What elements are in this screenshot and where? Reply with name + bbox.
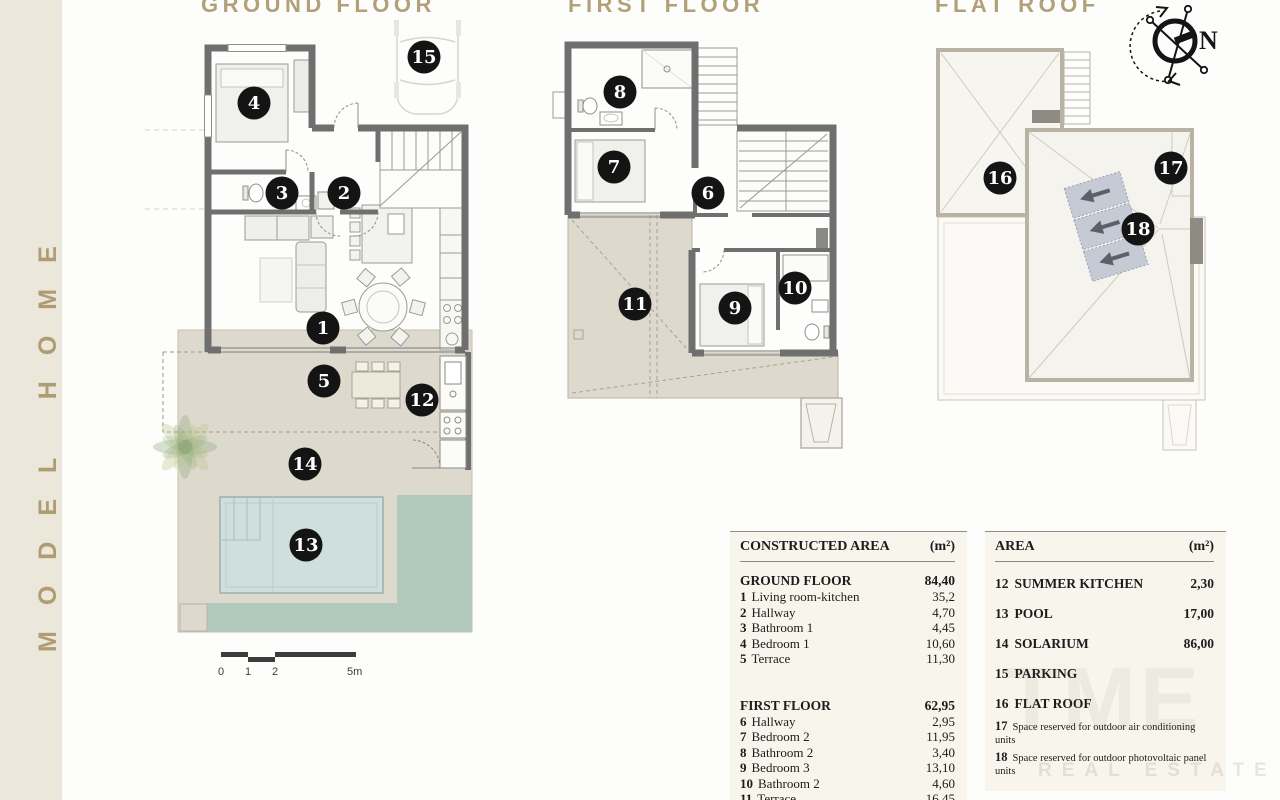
wardrobe [245,216,333,240]
table-row: 4Bedroom 110,60 [740,636,955,652]
corner-pad [180,604,207,631]
title-ground-floor: GROUND FLOOR [201,0,436,18]
table-row: 13POOL17,00 [995,606,1214,622]
svg-text:2: 2 [338,183,351,204]
table-row: 12SUMMER KITCHEN2,30 [995,576,1214,592]
table-row: 9Bedroom 313,10 [740,760,955,776]
scale-tick-2: 2 [272,666,278,678]
room-marker-10: 10 [779,272,812,305]
table-unit: (m²) [930,539,955,555]
room-marker-8: 8 [604,76,637,109]
room-marker-11: 11 [619,288,652,321]
roof-junction-box [1032,110,1060,123]
first-floor-plan: 8 7 6 11 9 10 [545,20,865,460]
svg-text:5: 5 [318,371,331,392]
table-row: 2Hallway4,70 [740,605,955,621]
stairs [380,130,463,208]
table-header: AREA (m²) [995,539,1214,562]
group-name: FIRST FLOOR [740,698,831,714]
table-row: 1Living room-kitchen35,2 [740,589,955,605]
group-value: 62,95 [925,698,955,714]
room-marker-14: 14 [289,448,322,481]
roof-stair-box [1163,400,1196,450]
rug [260,258,292,302]
room-marker-7: 7 [598,151,631,184]
area-table: AREA (m²) 12SUMMER KITCHEN2,30 13POOL17,… [985,531,1226,791]
room-marker-4: 4 [238,87,271,120]
room-marker-6: 6 [692,177,725,210]
lawn-strip [207,603,472,632]
louver-strip [1064,52,1090,124]
svg-text:6: 6 [702,183,715,204]
svg-text:13: 13 [293,535,318,556]
room-marker-13: 13 [290,529,323,562]
roof-vent [1190,218,1203,264]
louver-strip [697,48,737,125]
svg-text:8: 8 [614,82,627,103]
table-row: 16FLAT ROOF [995,696,1214,712]
brand-strip: MODEL HOME [0,0,62,800]
scale-bar: 0 1 2 5m [212,645,382,679]
room-marker-12: 12 [406,384,439,417]
page: MODEL HOME GROUND FLOOR FIRST FLOOR FLAT… [0,0,1280,800]
svg-text:3: 3 [276,183,289,204]
lawn-area [397,495,472,605]
svg-text:12: 12 [409,390,434,411]
table-row: 14SOLARIUM86,00 [995,636,1214,652]
first-floor-group: FIRST FLOOR62,95 6Hallway2,95 7Bedroom 2… [740,698,955,800]
svg-text:10: 10 [782,278,807,299]
svg-text:14: 14 [292,454,317,475]
table-title: AREA [995,539,1035,555]
title-first-floor: FIRST FLOOR [568,0,764,18]
group-value: 84,40 [925,573,955,589]
kitchen-counter [440,205,464,350]
svg-text:4: 4 [248,93,261,114]
svg-text:7: 7 [608,157,621,178]
scale-tick-5m: 5m [347,666,362,678]
svg-text:16: 16 [987,168,1012,189]
room-marker-3: 3 [266,177,299,210]
table-row: 3Bathroom 14,45 [740,620,955,636]
scale-tick-0: 0 [218,666,224,678]
table-title: CONSTRUCTED AREA [740,539,890,555]
sofa-icon [296,242,326,312]
table-row: 6Hallway2,95 [740,714,955,730]
group-name: GROUND FLOOR [740,573,851,589]
room-marker-5: 5 [308,365,341,398]
north-label: N [1199,26,1218,55]
table-row: 7Bedroom 211,95 [740,729,955,745]
outdoor-dining-set [352,362,400,408]
scale-tick-1: 1 [245,666,251,678]
balcony [801,398,842,448]
table-note: 18Space reserved for outdoor photovoltai… [995,751,1214,778]
ground-floor-group: GROUND FLOOR84,40 1Living room-kitchen35… [740,573,955,667]
room-marker-1: 1 [307,312,340,345]
room-marker-2: 2 [328,177,361,210]
table-row: 15PARKING [995,666,1214,682]
table-row: 8Bathroom 23,40 [740,745,955,761]
ground-floor-plan: 4 3 2 1 5 12 14 13 15 [140,20,500,660]
flat-roof-plan: 16 17 18 [920,40,1220,460]
compass-rose: N [1125,0,1225,95]
svg-text:9: 9 [729,298,742,319]
table-unit: (m²) [1189,539,1214,555]
svg-text:11: 11 [622,294,647,315]
room-marker-17: 17 [1155,152,1188,185]
svg-text:18: 18 [1125,219,1150,240]
palm-tree-icon [153,415,217,479]
svg-text:17: 17 [1158,158,1183,179]
room-marker-16: 16 [984,162,1017,195]
table-row: 5Terrace11,30 [740,651,955,667]
table-row: 10Bathroom 24,60 [740,776,955,792]
svg-text:1: 1 [317,318,330,339]
table-note: 17Space reserved for outdoor air conditi… [995,720,1214,747]
title-flat-roof: FLAT ROOF [935,0,1100,18]
brand-label: MODEL HOME [34,220,63,652]
constructed-area-table: CONSTRUCTED AREA (m²) GROUND FLOOR84,40 … [730,531,967,800]
svg-text:15: 15 [411,47,436,68]
room-marker-9: 9 [719,292,752,325]
table-row: 11Terrace16,45 [740,791,955,800]
closet [294,60,309,112]
stairs [737,131,830,211]
table-header: CONSTRUCTED AREA (m²) [740,539,955,562]
room-marker-15: 15 [408,41,441,74]
room-marker-18: 18 [1122,213,1155,246]
